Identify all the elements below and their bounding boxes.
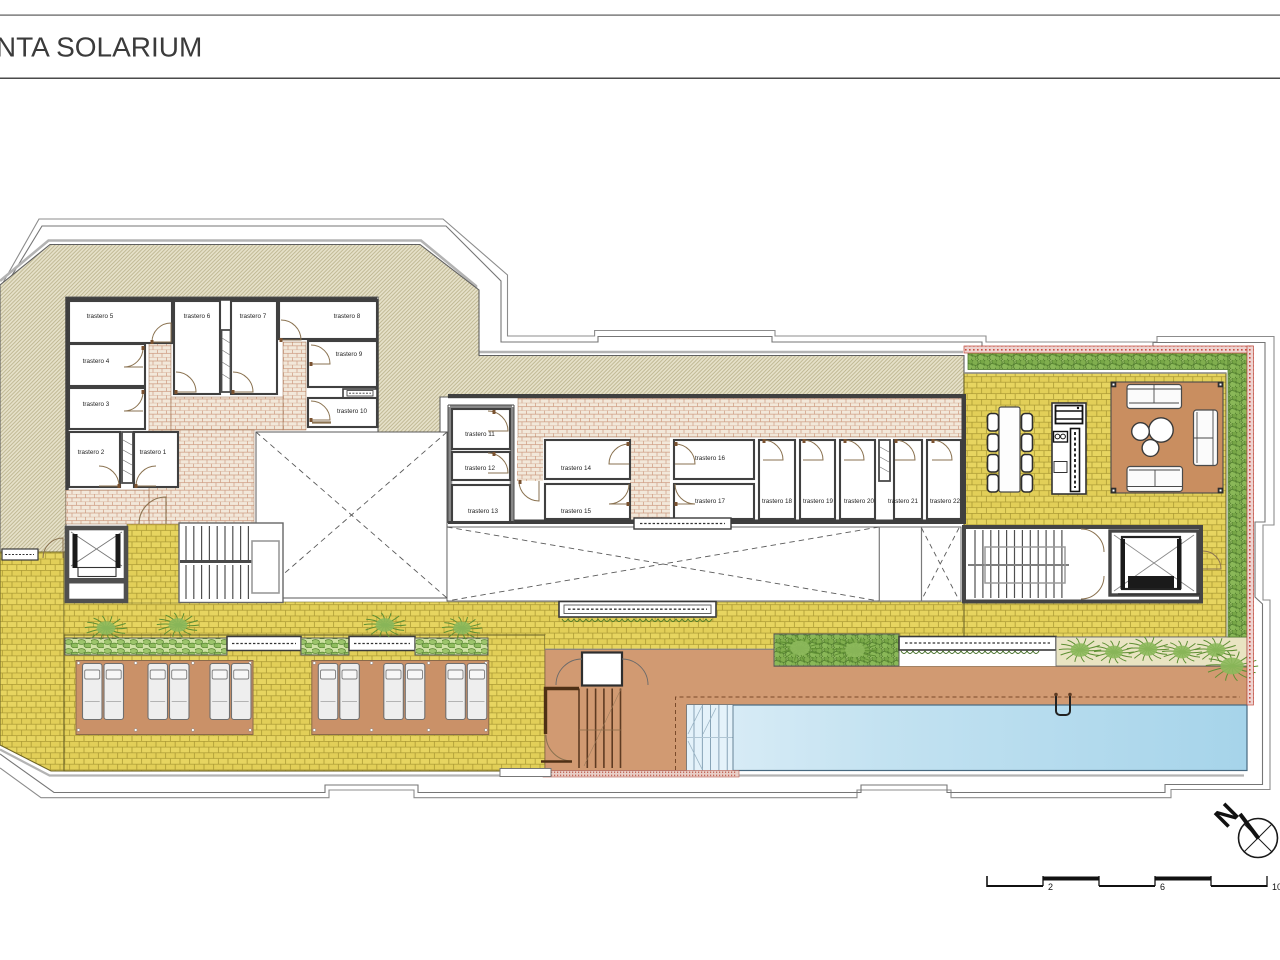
svg-text:trastero 10: trastero 10 — [337, 408, 368, 415]
svg-text:trastero 1: trastero 1 — [140, 449, 167, 456]
svg-text:trastero 16: trastero 16 — [695, 455, 726, 462]
svg-text:trastero 3: trastero 3 — [83, 401, 110, 408]
svg-text:trastero 19: trastero 19 — [803, 498, 834, 505]
svg-text:trastero 13: trastero 13 — [468, 508, 499, 515]
svg-text:10: 10 — [1272, 882, 1280, 892]
svg-text:trastero 17: trastero 17 — [695, 498, 726, 505]
svg-text:trastero 18: trastero 18 — [762, 498, 793, 505]
svg-text:trastero 12: trastero 12 — [465, 465, 496, 472]
svg-text:6: 6 — [1160, 882, 1165, 892]
svg-text:trastero 6: trastero 6 — [184, 313, 211, 320]
svg-text:trastero 21: trastero 21 — [888, 498, 919, 505]
svg-text:trastero 2: trastero 2 — [78, 449, 105, 456]
svg-text:2: 2 — [1048, 882, 1053, 892]
svg-text:trastero 4: trastero 4 — [83, 358, 110, 365]
svg-text:trastero 20: trastero 20 — [844, 498, 875, 505]
svg-text:trastero 5: trastero 5 — [87, 313, 114, 320]
svg-text:trastero 11: trastero 11 — [465, 431, 495, 438]
svg-text:trastero 22: trastero 22 — [930, 498, 961, 505]
svg-text:trastero 9: trastero 9 — [336, 351, 363, 358]
svg-text:trastero 14: trastero 14 — [561, 465, 592, 472]
svg-text:trastero 15: trastero 15 — [561, 508, 592, 515]
svg-text:trastero 7: trastero 7 — [240, 313, 267, 320]
svg-text:PLANTA SOLARIUM: PLANTA SOLARIUM — [0, 32, 202, 63]
svg-text:trastero 8: trastero 8 — [334, 313, 361, 320]
